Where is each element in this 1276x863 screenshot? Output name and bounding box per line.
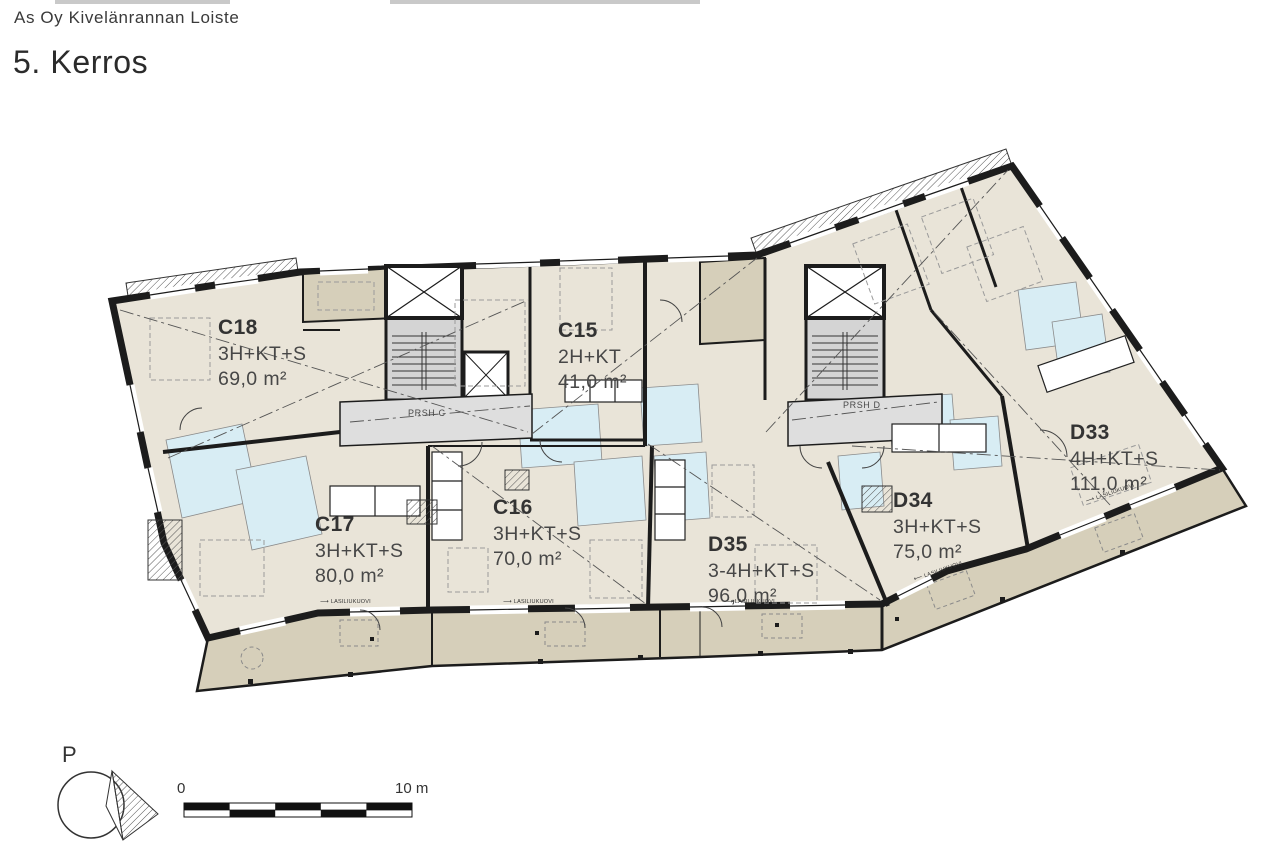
compass-rose — [58, 771, 158, 840]
terrace-room — [303, 268, 395, 322]
top-edge-artifacts — [55, 0, 700, 4]
stair-core-d — [806, 266, 884, 400]
floor-plan-page: As Oy Kivelänrannan Loiste 5. Kerros C18… — [0, 0, 1276, 863]
terrace-room — [700, 258, 765, 344]
floor-plan-drawing — [0, 0, 1276, 863]
scale-bar — [184, 803, 412, 817]
